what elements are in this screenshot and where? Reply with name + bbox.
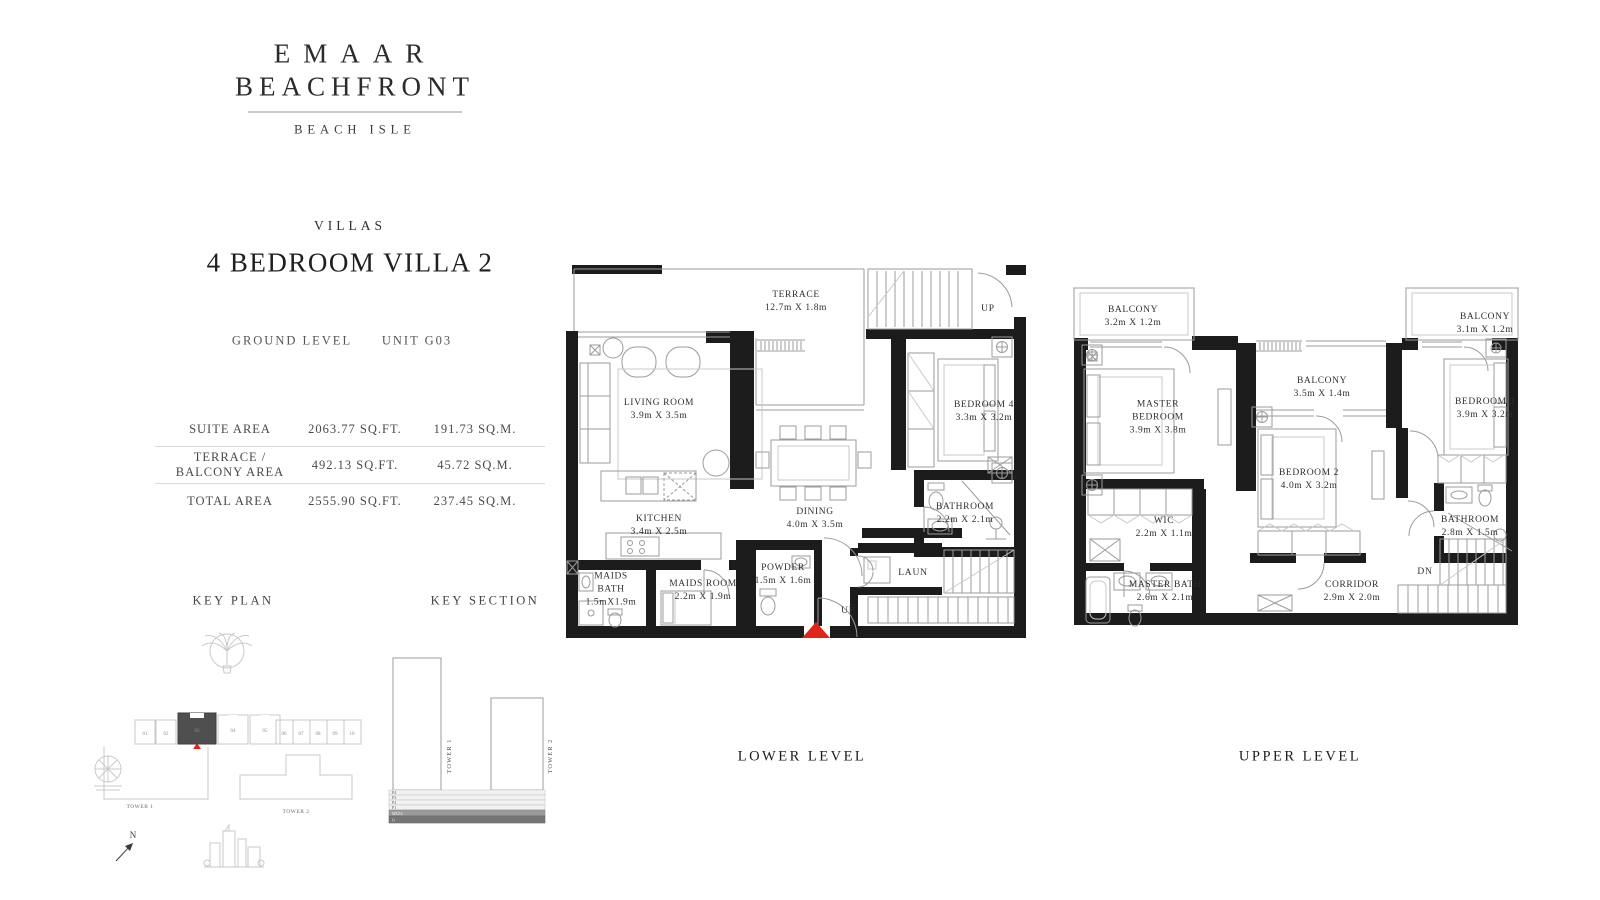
tower-footprints: TOWER 1 TOWER 2 [104, 747, 352, 815]
area-label: TERRACE / BALCONY AREA [155, 450, 305, 480]
svg-text:G: G [392, 818, 395, 823]
highlighted-unit-03: 03 [178, 713, 216, 749]
area-sqm: 191.73 SQ.M. [405, 422, 545, 437]
room-label-corridor: CORRIDOR2.9m X 2.0m [1324, 579, 1381, 605]
svg-text:TOWER 1: TOWER 1 [446, 739, 453, 774]
room-label-dining: DINING4.0m X 3.5m [787, 506, 844, 532]
upper-level-caption: UPPER LEVEL [1239, 749, 1361, 766]
room-label-laundry: LAUN [898, 568, 928, 578]
tower1-section [393, 658, 441, 790]
room-label-kitchen: KITCHEN3.4m X 2.5m [631, 513, 688, 539]
area-sqm: 237.45 SQ.M. [405, 494, 545, 509]
unit-label: UNIT G03 [382, 334, 452, 349]
door-arc [978, 273, 1012, 307]
north-arrow-icon: N [116, 830, 137, 861]
svg-text:10: 10 [350, 732, 356, 737]
level-label: GROUND LEVEL [232, 334, 352, 349]
stairs-down-label: DN [1417, 567, 1432, 577]
room-label-maids-bath: MAIDS BATH1.5mX1.9m [583, 571, 639, 610]
tower2-section [491, 698, 543, 790]
skyline-icon [204, 825, 264, 867]
page-title: 4 BEDROOM VILLA 2 [207, 248, 494, 279]
area-sqft: 2555.90 SQ.FT. [305, 494, 405, 509]
room-label-bedroom2: BEDROOM 24.0m X 3.2m [1279, 467, 1339, 493]
room-label-bedroom3: BEDROOM 33.9m X 3.2m [1455, 396, 1515, 422]
svg-text:08: 08 [316, 732, 322, 737]
room-label-upper-bathroom: BATHROOM2.8m X 1.5m [1441, 514, 1499, 540]
area-sqft: 492.13 SQ.FT. [305, 458, 405, 473]
svg-text:05: 05 [263, 729, 269, 734]
unit-strip: 01 02 03 04 05 06 07 08 09 10 [135, 713, 361, 749]
brand-subtitle: BEACH ISLE [235, 123, 475, 138]
table-row: SUITE AREA 2063.77 SQ.FT. 191.73 SQ.M. [155, 412, 545, 446]
door-arc [824, 538, 862, 576]
podium-floors: P4 P3 P2 P1 MEZZ G [389, 790, 545, 823]
room-label-balcony-center: BALCONY3.5m X 1.4m [1294, 375, 1351, 401]
entry-arrow [802, 622, 830, 638]
room-label-living-room: LIVING ROOM3.9m X 3.5m [624, 397, 694, 423]
key-plan-heading: KEY PLAN [193, 594, 274, 609]
door-arcs [1298, 501, 1434, 589]
svg-text:01: 01 [143, 732, 149, 737]
brand-line1: EMAAR [235, 39, 475, 70]
key-plan-diagram: 01 02 03 04 05 06 07 08 09 10 TOWER 1 TO… [90, 625, 390, 873]
room-label-maids-room: MAIDS ROOM2.2m X 1.9m [669, 578, 737, 604]
room-label-master-bath: MASTER BATH2.6m X 2.1m [1129, 579, 1201, 605]
svg-text:P1: P1 [392, 805, 396, 810]
area-label: TOTAL AREA [155, 494, 305, 509]
door-arc [1409, 511, 1434, 536]
room-label-bedroom4: BEDROOM 43.3m X 3.2m [954, 399, 1014, 425]
area-table: SUITE AREA 2063.77 SQ.FT. 191.73 SQ.M. T… [155, 412, 545, 518]
laundry-fixtures [858, 556, 890, 587]
svg-text:02: 02 [164, 732, 170, 737]
room-label-bathroom: BATHROOM2.2m X 2.1m [936, 501, 994, 527]
entry-up-label: UP [841, 606, 855, 616]
palm-island-icon [202, 633, 252, 673]
stairs [1398, 539, 1506, 613]
room-label-balcony-left: BALCONY3.2m X 1.2m [1105, 304, 1162, 330]
door-arc [1410, 431, 1438, 459]
room-label-master-bedroom: MASTER BEDROOM3.9m X 3.8m [1120, 399, 1196, 438]
room-label-wic: WIC2.2m X 1.1m [1136, 515, 1193, 541]
table-row: TERRACE / BALCONY AREA 492.13 SQ.FT. 45.… [155, 446, 545, 484]
lower-level-caption: LOWER LEVEL [738, 749, 867, 766]
svg-text:TOWER 1: TOWER 1 [126, 804, 153, 810]
stairs-up-label: UP [981, 304, 995, 314]
category-label: VILLAS [314, 218, 386, 234]
svg-text:09: 09 [333, 732, 339, 737]
shaft-box [1258, 595, 1292, 611]
svg-text:TOWER 2: TOWER 2 [282, 809, 309, 815]
ferris-wheel-icon [94, 756, 122, 790]
stairs-upper [868, 269, 1012, 329]
key-section-diagram: TOWER 1 TOWER 2 P4 P3 P2 P1 MEZZ G [385, 650, 560, 830]
svg-text:06: 06 [282, 732, 288, 737]
room-label-balcony-right: BALCONY3.1m X 1.2m [1457, 311, 1514, 337]
svg-text:07: 07 [299, 732, 305, 737]
table-row: TOTAL AREA 2555.90 SQ.FT. 237.45 SQ.M. [155, 484, 545, 518]
room-label-powder: POWDER1.5m X 1.6m [755, 562, 812, 588]
svg-text:TOWER 2: TOWER 2 [547, 739, 554, 774]
brand-line2: BEACHFRONT [235, 72, 475, 103]
area-sqm: 45.72 SQ.M. [405, 458, 545, 473]
svg-text:03: 03 [195, 729, 201, 734]
brand-logo: EMAAR BEACHFRONT BEACH ISLE [235, 39, 475, 138]
room-label-terrace: TERRACE12.7m X 1.8m [765, 289, 827, 315]
svg-text:04: 04 [231, 729, 237, 734]
svg-text:N: N [130, 830, 137, 840]
dining-table [756, 426, 871, 500]
key-section-heading: KEY SECTION [431, 594, 540, 609]
area-sqft: 2063.77 SQ.FT. [305, 422, 405, 437]
brand-divider [248, 112, 462, 113]
area-label: SUITE AREA [155, 422, 305, 437]
svg-text:MEZZ: MEZZ [392, 811, 403, 816]
